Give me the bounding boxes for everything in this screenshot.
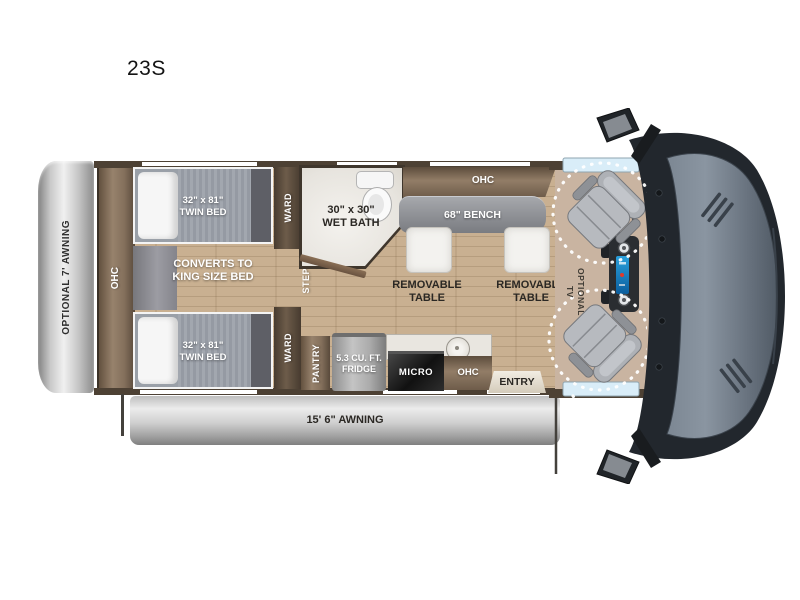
wardrobe-bottom: WARD [274,307,301,389]
wardrobe-top-label: WARD [283,193,293,223]
floorplan-title: 23S [127,57,166,81]
wardrobe-bottom-label: WARD [283,333,293,363]
twin-bed-top: 32" x 81" TWIN BED [133,167,273,244]
bed-footboard [251,314,271,387]
rear-ohc-label-wrap: OHC [97,168,133,388]
window-bottom-bed [140,390,257,394]
window-top-bench [430,162,530,166]
galley-ohc-label: OHC [455,175,511,187]
fridge: 5.3 CU. FT. FRIDGE [332,333,386,391]
removable-table-left [406,227,452,273]
table-left-label: REMOVABLE TABLE [388,279,466,306]
bench-label: 68" BENCH [444,209,501,222]
wet-bath-label: 30" x 30" WET BATH [310,204,392,231]
patio-awning-label: 15' 6" AWNING [306,414,383,427]
kitchen-ohc-label: OHC [457,367,478,379]
twin-bed-top-label: 32" x 81" TWIN BED [153,195,253,218]
patio-awning-bar: 15' 6" AWNING [130,396,560,445]
sink-drain [455,346,459,350]
entry-label: ENTRY [499,376,534,389]
rear-awning-bar: OPTIONAL 7' AWNING [38,161,94,393]
pantry-label-wrap: PANTRY [301,336,330,390]
window-rear-side [94,246,97,310]
body-edge-rear [121,394,124,436]
twin-bed-bottom: 32" x 81" TWIN BED [133,312,273,389]
step-label: STEP [301,268,311,294]
fridge-label: 5.3 CU. FT. FRIDGE [336,353,382,375]
optional-tv-label-wrap: OPTIONAL TV [556,248,594,336]
pantry-label: PANTRY [311,344,321,383]
window-top-bed [142,162,257,166]
wardrobe-top: WARD [274,167,301,249]
rear-awning-label: OPTIONAL 7' AWNING [61,220,72,335]
microwave-label: MICRO [399,367,433,379]
twin-bed-bottom-label: 32" x 81" TWIN BED [153,340,253,363]
bed-footboard [251,169,271,242]
kitchen-ohc-cabinet: OHC [444,356,492,390]
microwave: MICRO [388,351,444,391]
cab-window-top [563,158,639,172]
optional-tv-label: OPTIONAL TV [564,268,586,316]
king-bed-label: CONVERTS TO KING SIZE BED [140,258,286,285]
floorplan-canvas: 23S OPTIONAL 7' AWNING 15' 6" AWNING OHC… [0,0,800,600]
rear-ohc-label: OHC [110,267,121,289]
